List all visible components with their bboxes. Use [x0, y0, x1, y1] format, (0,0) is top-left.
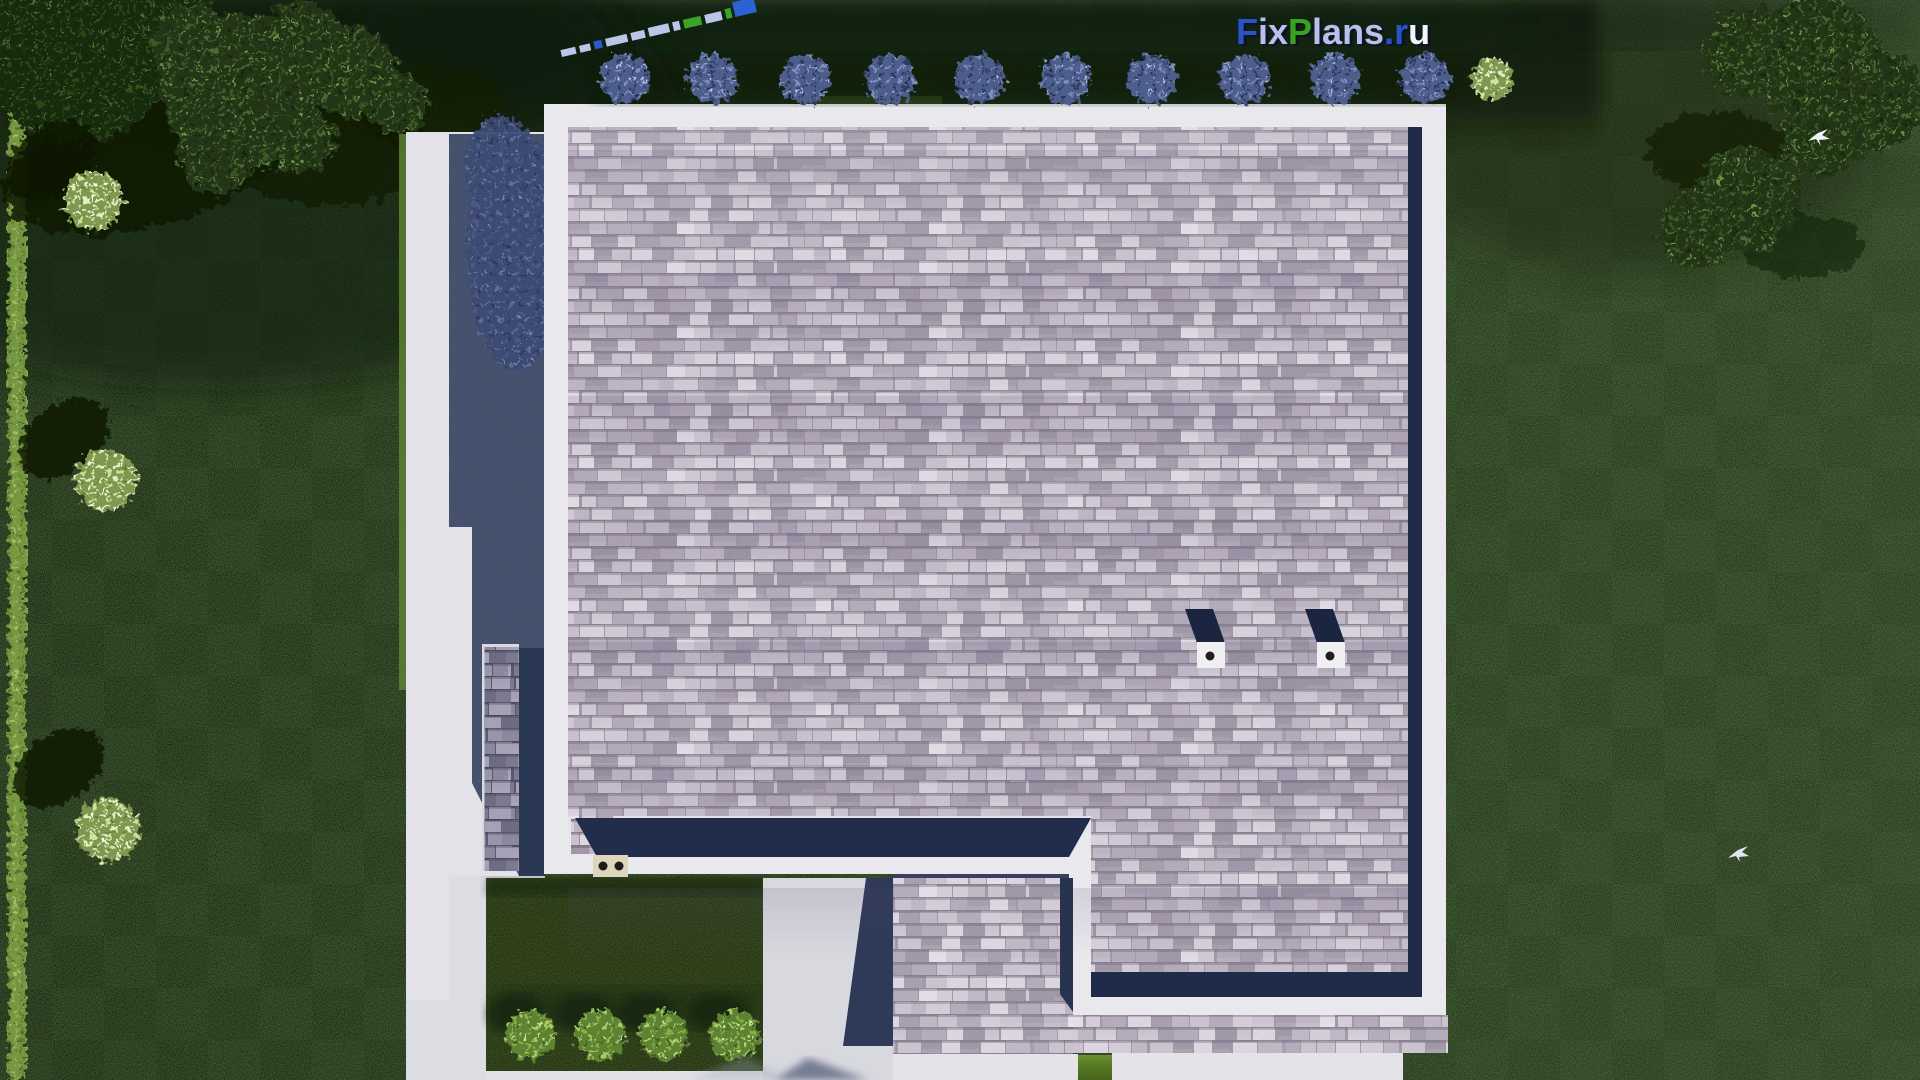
svg-text:FixPlans.ru: FixPlans.ru	[1236, 11, 1430, 52]
